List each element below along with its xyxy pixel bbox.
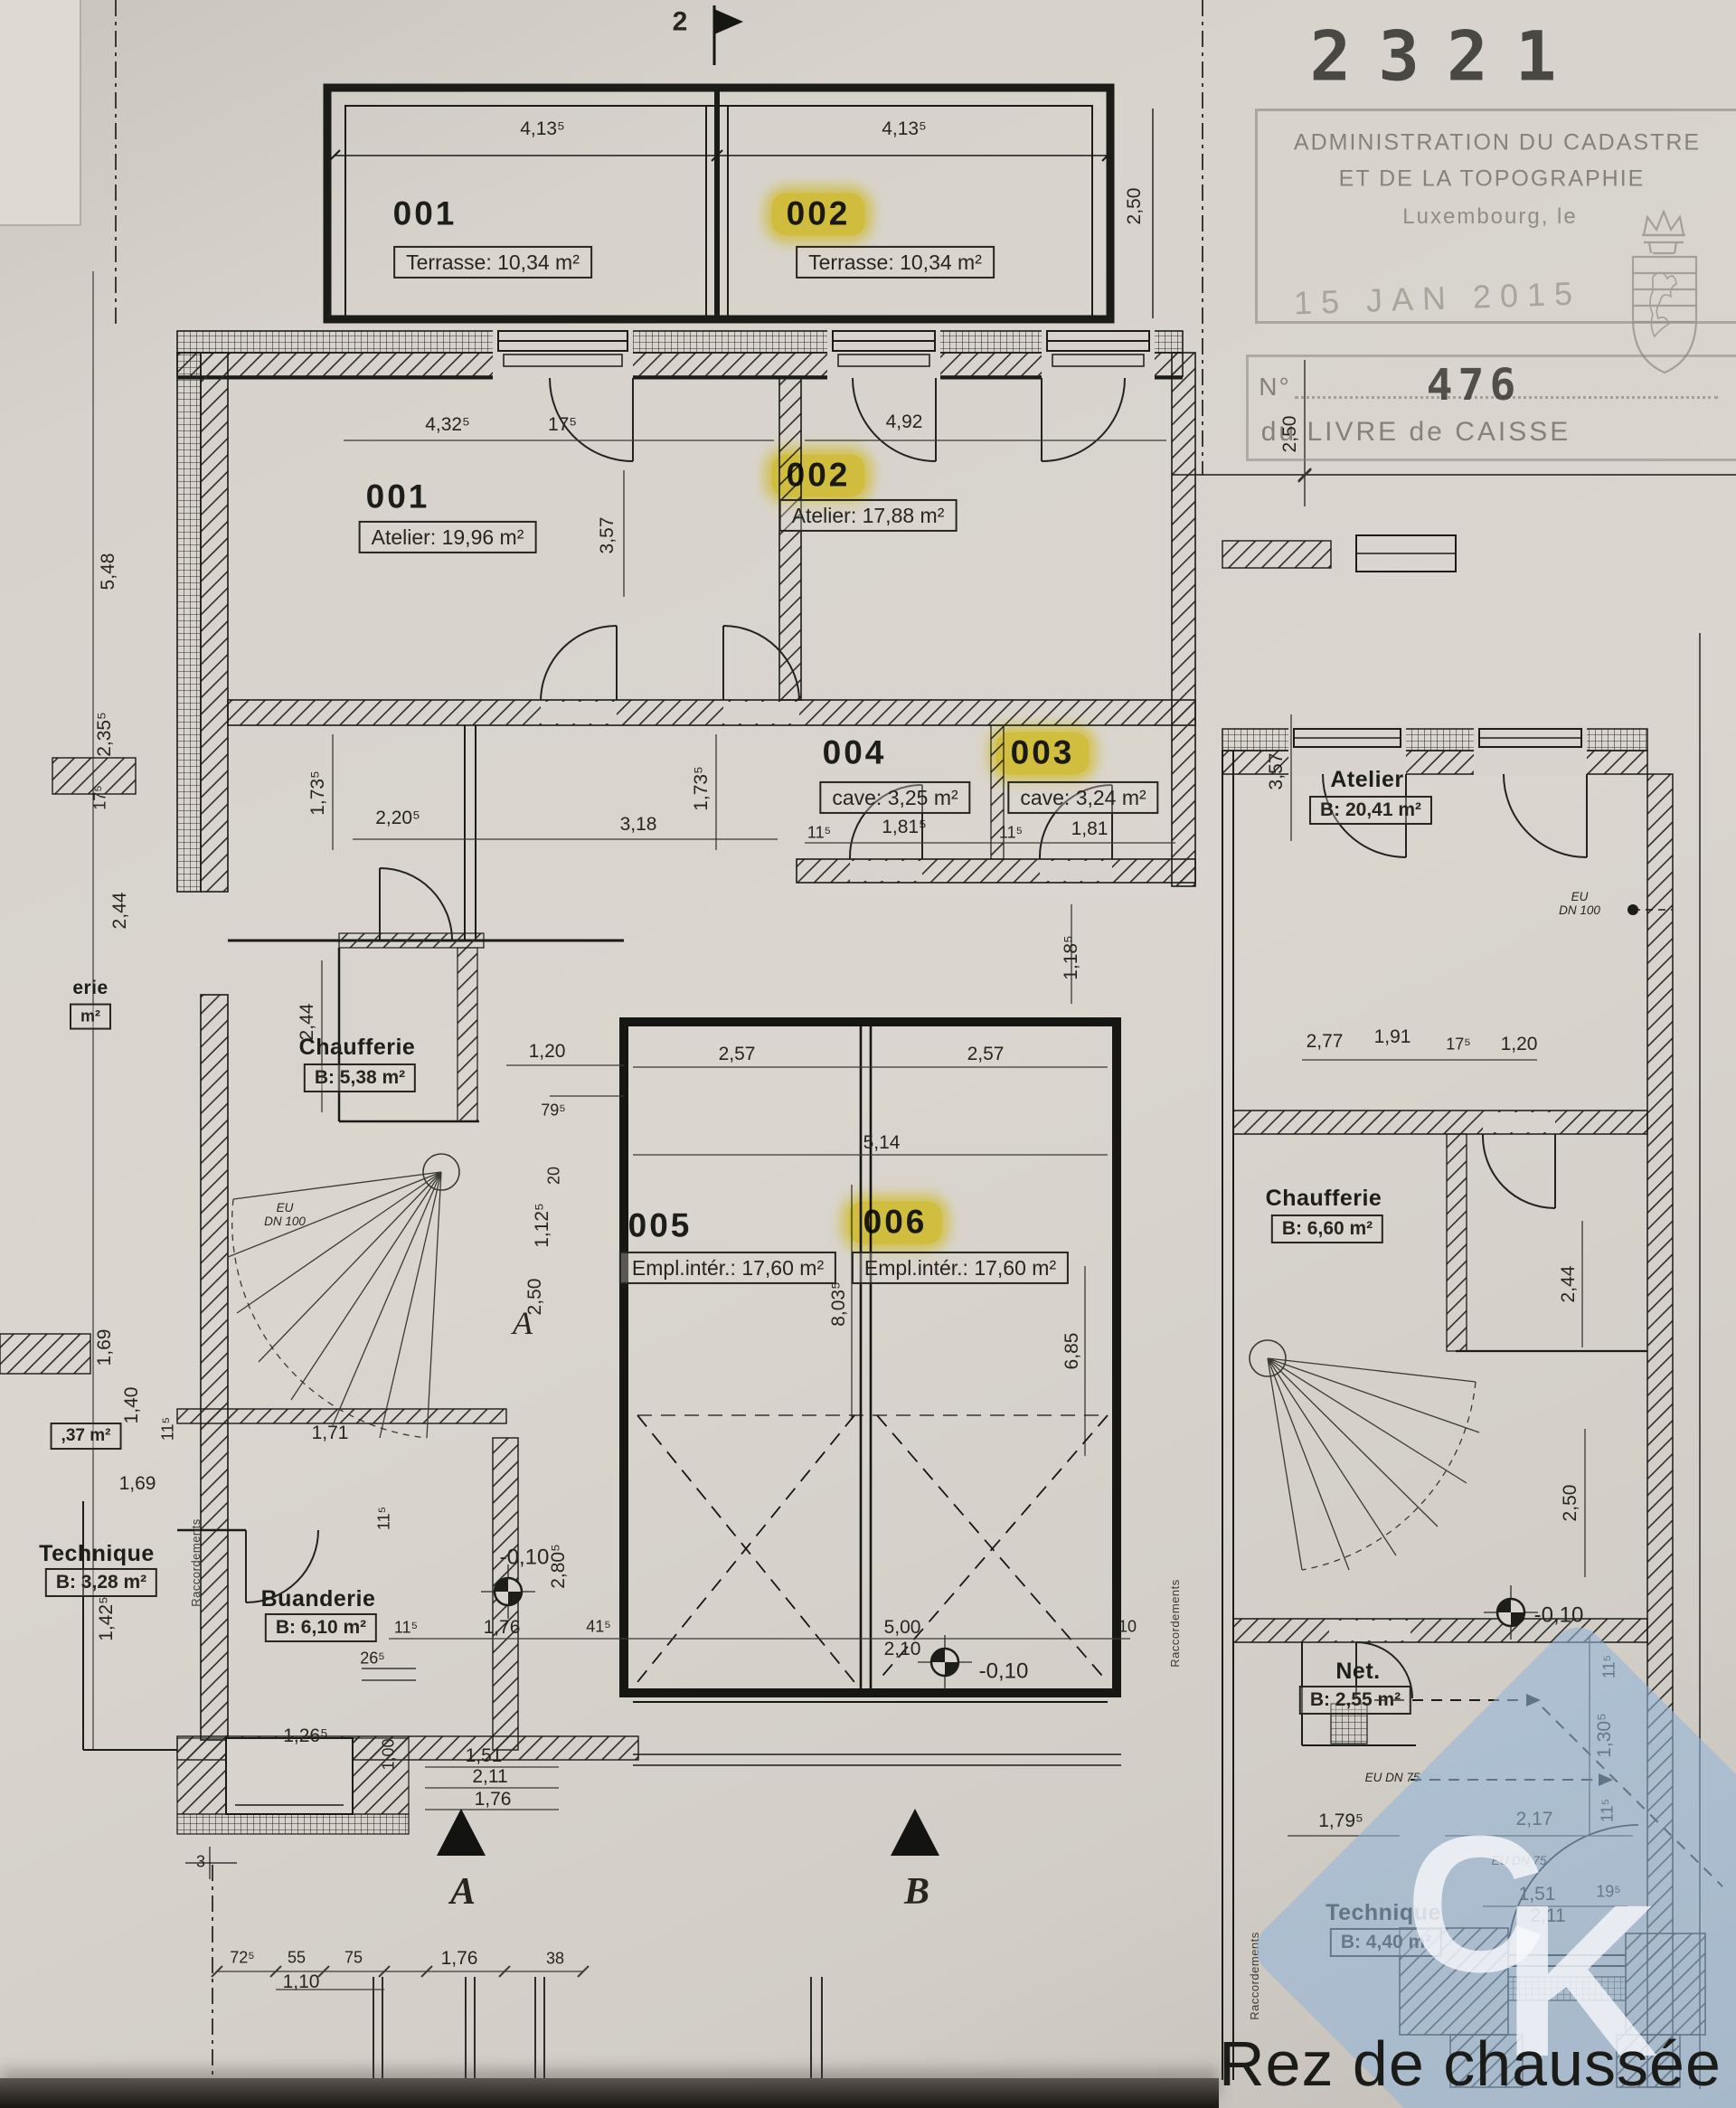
dim-label: 3,18 [620,815,657,835]
dim-label: 1,79⁵ [1318,1811,1363,1831]
dim-label: 5,14 [863,1133,901,1153]
section-number: 2 [673,7,688,36]
pipe-label-eu-dn100: EU DN 100 [264,1202,306,1229]
dim-label: 75 [344,1950,363,1967]
dim-label: 1,69 [119,1474,156,1494]
room-area: cave: 3,24 m² [1007,781,1158,814]
floor-title: Rez de chaussée [1219,2028,1722,2100]
dim-label: 79⁵ [541,1102,565,1120]
dim-label: 1,76 [484,1618,521,1638]
dim-label: 3 [196,1854,205,1871]
axis-label-a: A [513,1307,533,1341]
dim-label: 1,51 [466,1746,503,1766]
room-number-highlighted: 003 [996,733,1090,775]
dim-label: 11⁵ [999,825,1023,842]
dim-label: 1,10 [283,1972,320,1992]
room-number: 005 [628,1209,693,1244]
room-area: B: 6,60 m² [1271,1215,1383,1243]
room-area: cave: 3,25 m² [819,781,970,814]
dim-label: 11⁵ [160,1417,177,1441]
room-number: 004 [823,736,887,771]
room-area: Empl.intér.: 17,60 m² [852,1252,1069,1284]
room-area: B: 6,10 m² [265,1613,377,1642]
dim-label: 1,76 [441,1949,478,1969]
dim-label: 10 [1118,1619,1137,1636]
dim-label: 1,81 [1071,819,1109,839]
dim-label: 2,50 [1280,416,1300,453]
dim-label: 41⁵ [586,1619,610,1636]
dim-label: 2,44 [110,893,130,930]
dim-label: 1,26⁵ [283,1726,328,1746]
room-area: Terrasse: 10,34 m² [393,246,592,279]
dim-label: 20 [546,1167,563,1185]
dim-label: 11⁵ [376,1507,393,1530]
dim-label: 4,13⁵ [882,119,927,139]
dim-label: 1,42⁵ [97,1596,117,1641]
dim-label: 2,57 [719,1045,756,1064]
dim-label: 11⁵ [394,1620,418,1637]
dim-label: 2,20⁵ [375,808,420,828]
room-number: 001 [366,480,430,515]
raccordements-label: Raccordements [1169,1579,1182,1668]
dim-label: 1,73⁵ [692,766,712,811]
dim-label: 3,57 [598,517,618,554]
dim-label: 8,03⁵ [829,1281,849,1327]
dim-label: 1,20 [1501,1035,1538,1054]
dim-label: 5,00 [884,1618,921,1638]
room-name: Net. [1335,1659,1380,1683]
entrance-label-b: B [904,1872,929,1912]
dim-label: 17⁵ [92,785,109,809]
dim-label: 2,50 [1561,1485,1580,1522]
room-name: Chaufferie [1266,1186,1382,1210]
room-area: B: 3,28 m² [45,1568,157,1597]
scanned-floor-plan: 2321 ADMINISTRATION DU CADASTRE ET DE LA… [0,0,1736,2108]
room-number-highlighted: 006 [849,1202,942,1244]
elevation-label: -0,10 [500,1546,550,1568]
dim-label: 4,92 [886,412,923,432]
dim-label: 1,91 [1374,1027,1411,1047]
elevation-label: -0,10 [979,1659,1029,1682]
room-area: Atelier: 17,88 m² [779,499,958,532]
dim-label: 1,12⁵ [533,1203,552,1248]
dim-label: 2,77 [1307,1032,1344,1052]
dim-label: 17⁵ [548,415,577,435]
dim-label: 1,69 [95,1329,115,1366]
dim-label: 72⁵ [230,1950,254,1967]
dim-label: 4,32⁵ [425,415,470,435]
room-number: 001 [393,197,458,232]
dim-label: 55 [288,1950,306,1967]
dim-label: 6,85 [1062,1333,1082,1370]
dim-label: 1,73⁵ [308,770,328,816]
room-area: B: 20,41 m² [1309,796,1432,825]
photo-table-edge [0,2078,1219,2108]
dim-label: 2,35⁵ [95,712,115,757]
dim-label: 1,71 [312,1423,349,1443]
raccordements-label: Raccordements [190,1518,203,1607]
dim-label: 38 [546,1951,564,1968]
dim-label: 5,48 [99,553,118,591]
dim-label: 26⁵ [360,1650,384,1668]
dim-label: 1,40 [122,1387,142,1424]
room-area: Terrasse: 10,34 m² [796,246,995,279]
dim-label: 1,00 [381,1738,398,1770]
room-area: Empl.intér.: 17,60 m² [619,1252,836,1284]
dim-label: 2,80⁵ [549,1544,569,1589]
room-name: Technique [39,1542,155,1565]
room-number-highlighted: 002 [772,194,865,236]
elevation-label: -0,10 [1534,1603,1584,1626]
dim-label: 2,57 [967,1045,1005,1064]
dim-label: 1,20 [529,1042,566,1062]
dim-label: 2,44 [1559,1266,1579,1303]
dim-label: 2,11 [472,1767,507,1787]
dim-label: 1,76 [475,1790,512,1810]
room-name-partial: erie [72,978,108,998]
dim-label: 11⁵ [807,825,831,842]
room-area-partial: ,37 m² [51,1423,122,1450]
dim-label: 2,50 [1125,188,1145,225]
pipe-label-eu-dn100: EU DN 100 [1559,891,1600,918]
dim-label: 1,18⁵ [1061,935,1081,980]
dim-label: 3,57 [1267,753,1287,790]
room-area: B: 2,55 m² [1299,1686,1411,1715]
dim-label: 4,13⁵ [520,119,565,139]
room-area: B: 5,38 m² [304,1063,416,1092]
room-number-highlighted: 002 [772,455,865,497]
dim-label: 1,81⁵ [882,818,927,837]
room-area-partial: m² [70,1004,111,1030]
room-name: Buanderie [261,1587,376,1611]
dim-label: 17⁵ [1446,1036,1470,1054]
room-area: Atelier: 19,96 m² [359,521,537,553]
entrance-label-a: A [450,1872,476,1912]
dim-label: 2,44 [297,1004,317,1041]
room-name: Atelier [1330,768,1403,791]
dim-label: 2,10 [884,1640,921,1659]
